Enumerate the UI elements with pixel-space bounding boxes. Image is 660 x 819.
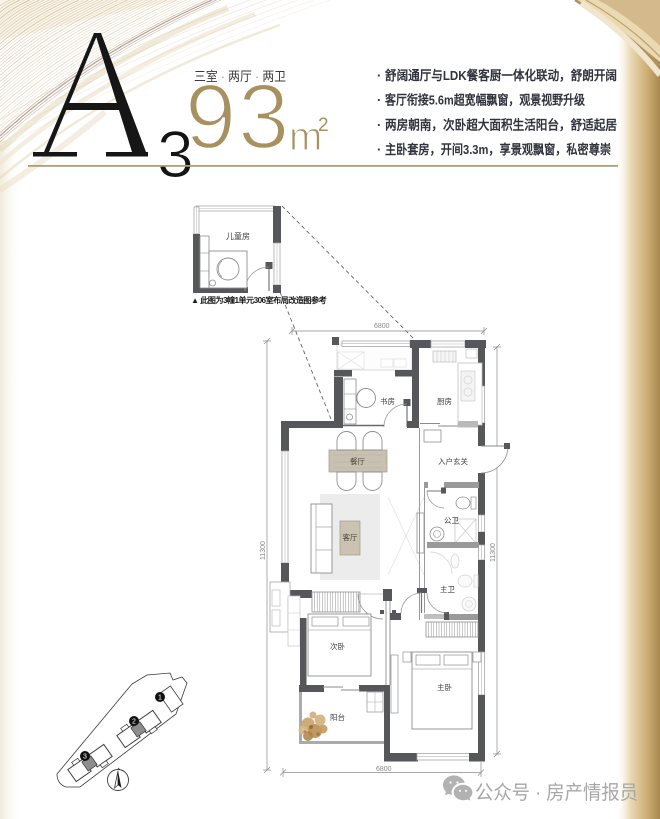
svg-text:两房朝南，次卧超大面积生活阳台，舒适起居: 两房朝南，次卧超大面积生活阳台，舒适起居	[385, 118, 617, 133]
svg-text:主卫: 主卫	[440, 584, 455, 594]
svg-text:·: ·	[377, 68, 381, 83]
svg-text:6800: 6800	[374, 323, 390, 330]
svg-text:11300: 11300	[490, 543, 497, 562]
svg-text:次卧: 次卧	[330, 641, 345, 651]
svg-text:主卧套房，开间3.3m，享景观飘窗，私密尊崇: 主卧套房，开间3.3m，享景观飘窗，私密尊崇	[385, 142, 611, 157]
svg-text:·: ·	[377, 142, 381, 157]
svg-text:客厅: 客厅	[343, 532, 358, 542]
svg-text:入户玄关: 入户玄关	[438, 456, 468, 466]
svg-text:客厅衔接5.6m超宽幅飘窗，观景视野升级: 客厅衔接5.6m超宽幅飘窗，观景视野升级	[385, 93, 586, 108]
svg-text:2: 2	[318, 115, 329, 136]
svg-text:·: ·	[377, 93, 381, 108]
svg-text:主卧: 主卧	[437, 682, 452, 692]
svg-text:阳台: 阳台	[330, 712, 345, 722]
svg-text:公卫: 公卫	[444, 516, 459, 525]
svg-text:舒阔通厅与LDK餐客厨一体化联动，舒朗开阔: 舒阔通厅与LDK餐客厨一体化联动，舒朗开阔	[385, 68, 617, 83]
svg-text:·: ·	[377, 118, 381, 133]
svg-text:书房: 书房	[380, 396, 395, 406]
svg-text:6800: 6800	[376, 766, 392, 773]
svg-text:2: 2	[132, 719, 136, 726]
svg-text:厨房: 厨房	[437, 396, 452, 406]
svg-text:11300: 11300	[260, 541, 267, 560]
svg-text:公众号 · 房产情报员: 公众号 · 房产情报员	[475, 782, 638, 804]
svg-text:▲ 此图为3幢1单元306室布局改造图参考: ▲ 此图为3幢1单元306室布局改造图参考	[191, 295, 327, 305]
svg-text:儿童房: 儿童房	[226, 231, 250, 241]
svg-text:1: 1	[158, 695, 162, 702]
svg-text:餐厅: 餐厅	[350, 457, 365, 466]
svg-text:93: 93	[185, 66, 291, 168]
svg-text:3: 3	[83, 754, 87, 761]
